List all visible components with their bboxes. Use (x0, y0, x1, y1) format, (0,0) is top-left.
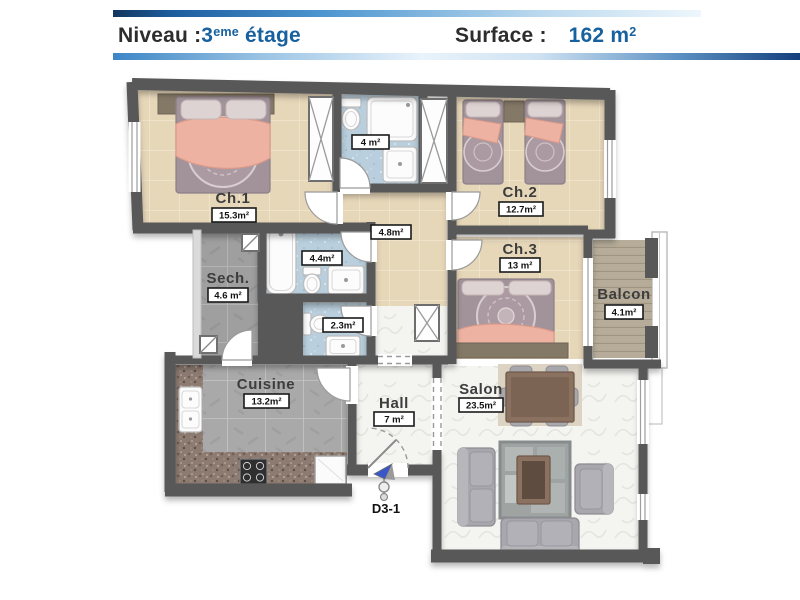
duct-icon (200, 336, 217, 353)
room-ch1-area: 15.3m² (219, 211, 249, 222)
surface-label: Surface : (455, 24, 547, 47)
room-ch2-label: Ch.2 (503, 184, 538, 201)
header-bottom-gradient-bar (113, 53, 800, 60)
room-salon-area: 23.5m² (466, 401, 496, 412)
unit-label: D3-1 (372, 501, 400, 516)
room-sech-label: Sech. (206, 270, 249, 287)
room-cuisine-label: Cuisine (237, 376, 295, 393)
room-ch2-area: 12.7m² (506, 205, 536, 216)
level-heading: Niveau :3eme étage (118, 24, 301, 48)
surface-heading: Surface :162 m2 (455, 24, 636, 48)
ch1-bed-icon (158, 94, 274, 193)
room-ch3-label: Ch.3 (503, 241, 538, 258)
wc-area: 2.3m² (331, 321, 356, 332)
sofa-left-icon (458, 448, 495, 526)
room-balcon-area: 4.1m² (612, 308, 637, 319)
closet-icon (309, 97, 333, 181)
level-label: Niveau : (118, 24, 201, 47)
closet-icon (415, 305, 439, 341)
opening-hall-corridor (378, 354, 412, 366)
level-value: 3eme étage (201, 24, 301, 47)
duct-icon (242, 234, 259, 251)
balcony-pillar (645, 238, 658, 278)
room-salon-label: Salon (459, 381, 503, 398)
terrace-railing (648, 368, 662, 424)
room-hall-label: Hall (379, 395, 409, 412)
room-ch3-area: 13 m² (508, 261, 533, 272)
floor-plan-drawing: Ch.1 15.3m² 4 m² Ch.2 12.7m² Ch.3 13 m² … (0, 60, 800, 600)
room-sech-area: 4.6 m² (214, 291, 241, 302)
balcony-pillar (645, 326, 658, 358)
window-icon (637, 380, 649, 444)
room-ch1-label: Ch.1 (216, 190, 251, 207)
toilet-icon (341, 98, 361, 107)
armchair-icon (575, 464, 613, 514)
bath-top-area: 4 m² (361, 138, 381, 149)
window-icon (604, 140, 616, 198)
floor-plan-page: Niveau :3eme étage Surface :162 m2 (0, 0, 800, 600)
header-top-gradient-bar (113, 10, 701, 17)
bath-mid-area: 4.4m² (310, 254, 335, 265)
room-cuisine-area: 13.2m² (251, 397, 281, 408)
corridor-area: 4.8m² (379, 228, 404, 239)
closet-icon (421, 99, 447, 183)
window-icon (129, 122, 141, 192)
surface-value: 162 m2 (569, 24, 637, 47)
window-icon (637, 494, 649, 520)
balcony-door-icon (583, 258, 593, 346)
dining-set-icon (498, 364, 582, 426)
ch3-bed-icon (452, 279, 568, 358)
room-balcon-label: Balcon (597, 286, 651, 303)
room-hall-area: 7 m² (384, 415, 404, 426)
opening-hall-salon (432, 378, 443, 450)
